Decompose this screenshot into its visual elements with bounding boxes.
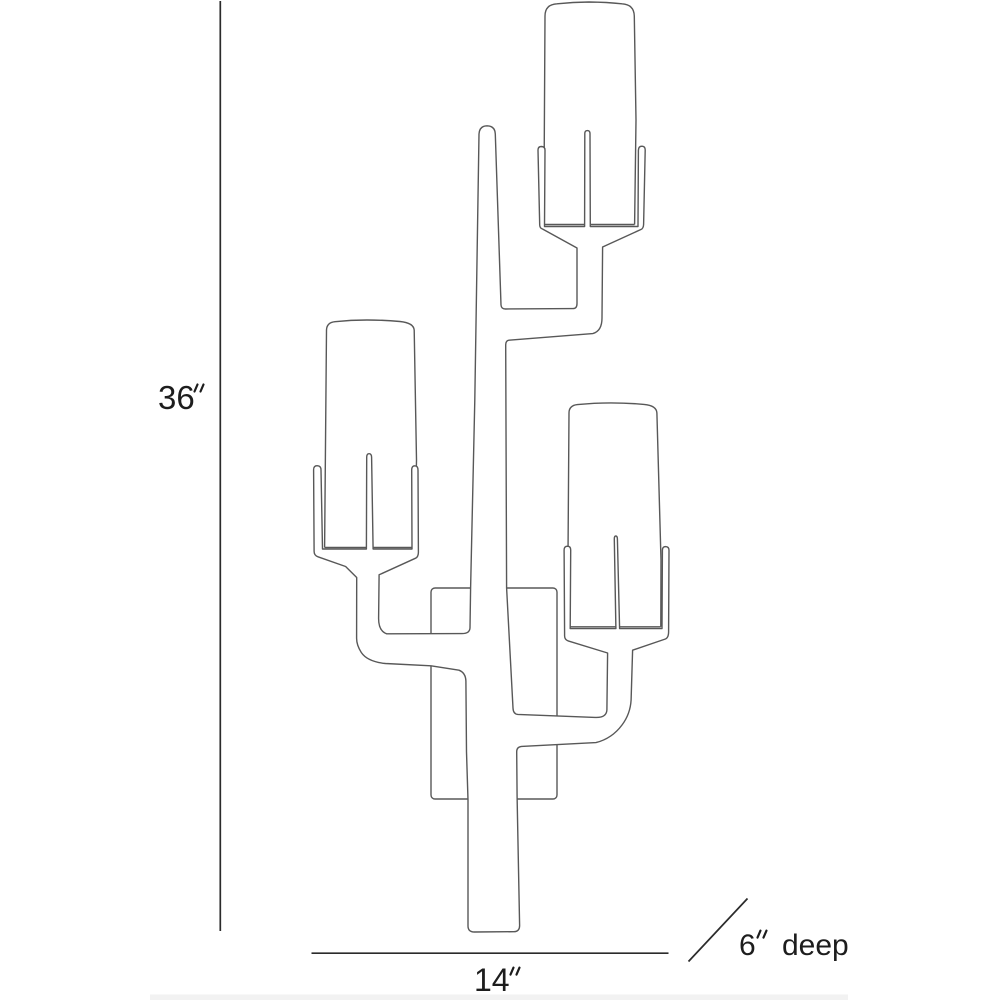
svg-text:36: 36	[158, 379, 195, 416]
svg-text:14: 14	[474, 962, 510, 998]
svg-text:6: 6	[739, 929, 756, 962]
svg-text:deep: deep	[782, 929, 849, 962]
